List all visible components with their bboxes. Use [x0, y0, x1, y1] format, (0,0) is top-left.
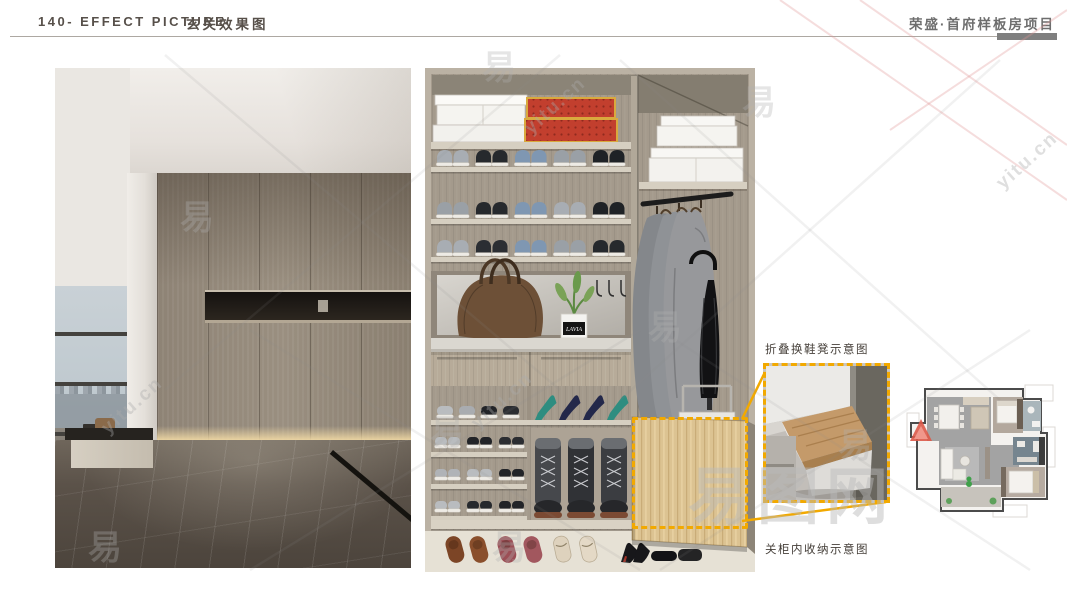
drawers	[431, 352, 631, 386]
display-niche	[205, 290, 411, 323]
stool-photo-render	[766, 366, 887, 500]
project-title: 荣盛·首府样板房项目	[909, 13, 1055, 33]
top-shelf	[431, 142, 631, 149]
presentation-slide: 140- EFFECT PICTURE 玄关效果图 荣盛·首府样板房项目	[0, 0, 1067, 600]
stool-detail-photo	[763, 363, 890, 503]
page-title: 玄关效果图	[186, 13, 269, 33]
hat-shelf	[639, 182, 747, 189]
niche-object	[318, 300, 328, 312]
under-cabinet-light	[157, 426, 411, 440]
floor-plan	[905, 383, 1057, 520]
header-accent-bar	[997, 33, 1057, 40]
red-gift-boxes	[525, 98, 617, 142]
storage-callout-label: 关柜内收纳示意图	[765, 541, 869, 557]
highlight-dashed-box	[632, 417, 748, 529]
bench	[65, 428, 153, 468]
boots	[534, 438, 628, 518]
wardrobe-doors	[157, 173, 411, 440]
entry-photo	[55, 68, 411, 568]
display-niche: LAVIA	[431, 260, 631, 352]
white-shoe-boxes-left	[433, 95, 529, 142]
stool-callout-label: 折叠换鞋凳示意图	[765, 341, 869, 357]
plant-pot-label: LAVIA	[565, 327, 582, 333]
header-divider	[10, 36, 1057, 37]
left-wall	[55, 68, 130, 304]
white-boxes-right	[649, 116, 743, 182]
